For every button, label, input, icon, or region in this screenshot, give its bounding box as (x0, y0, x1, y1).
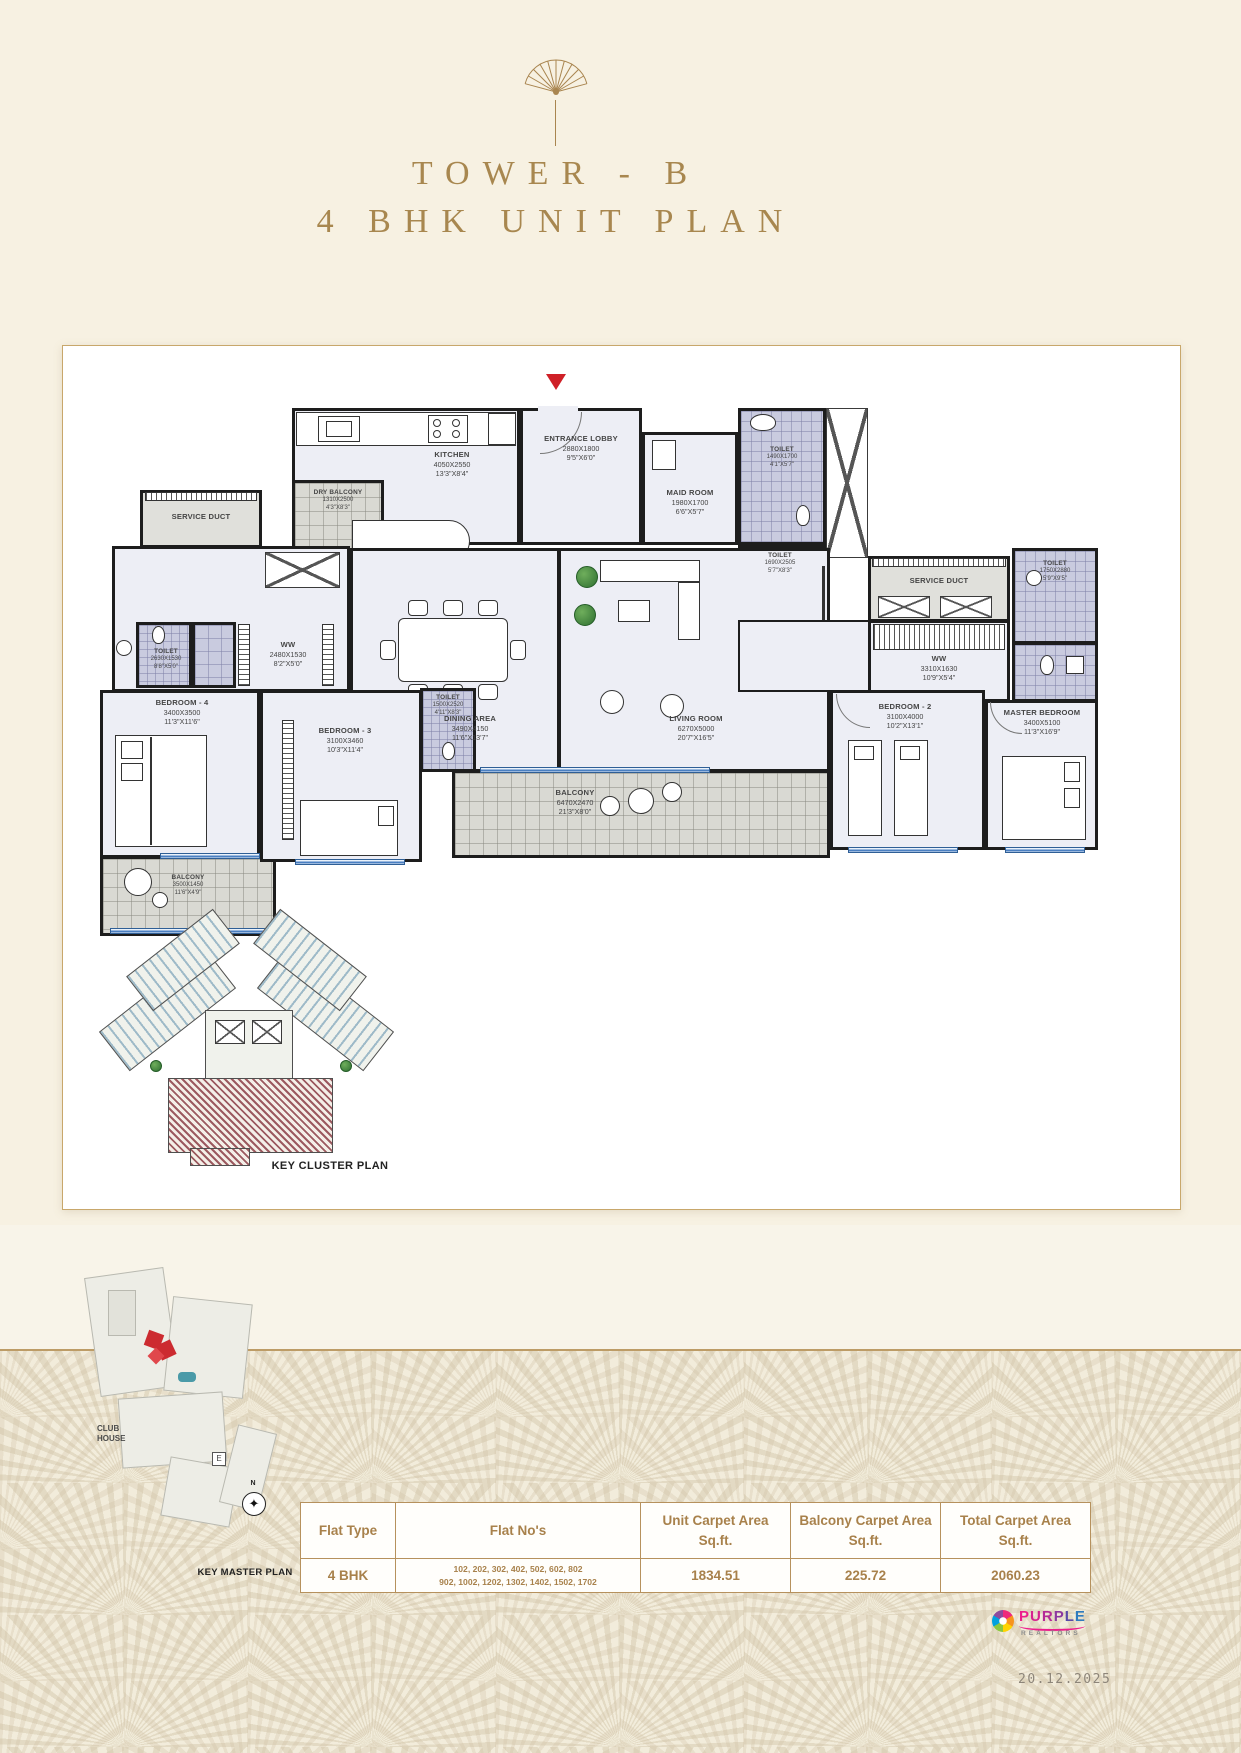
col-flat-nos: Flat No's (396, 1503, 641, 1559)
cluster-core-shaft (252, 1020, 282, 1044)
bedroom-4-label: BEDROOM - 4 3400X3500 11'3"X11'6" (126, 698, 238, 727)
kitchen-sink-bowl (326, 421, 352, 437)
sofa (600, 560, 700, 582)
page-title-line1: TOWER - B (0, 155, 1112, 193)
basin (750, 414, 776, 431)
duct-xbox (940, 596, 992, 618)
pillow (1064, 788, 1080, 808)
toilet-lower-room (1012, 642, 1098, 702)
page: TOWER - B 4 BHK UNIT PLAN (0, 0, 1241, 1753)
duct-xbox (878, 596, 930, 618)
hob-burner (452, 419, 460, 427)
map-block (163, 1296, 252, 1399)
entrance-lobby-room (520, 408, 642, 545)
dining-chair (408, 600, 428, 616)
plant (574, 604, 596, 626)
basin (116, 640, 132, 656)
page-title-line2: 4 BHK UNIT PLAN (0, 203, 1112, 241)
flat-nos-line2: 902, 1002, 1202, 1302, 1402, 1502, 1702 (402, 1576, 634, 1589)
key-cluster-plan-label: KEY CLUSTER PLAN (272, 1160, 389, 1172)
fan-icon (524, 50, 588, 103)
lounge-chair (124, 868, 152, 896)
window (848, 847, 958, 853)
col-unit-area: Unit Carpet Area Sq.ft. (641, 1503, 791, 1559)
map-pool (178, 1372, 196, 1382)
ww-bed4-label: WW 2480X1530 8'2"X5'0" (232, 640, 344, 669)
washing-machine (1066, 656, 1084, 674)
pillow (121, 763, 143, 781)
entrance-arrow-icon (546, 374, 566, 390)
hob-burner (433, 419, 441, 427)
maid-bed (652, 440, 676, 470)
club-house-label: CLUB HOUSE (97, 1424, 143, 1444)
pillow (854, 746, 874, 760)
dining-table (398, 618, 508, 682)
shaft (826, 408, 868, 558)
maid-room-label: MAID ROOM 1980X1700 6'6"X5'7" (634, 488, 746, 517)
entrance-lobby-label: ENTRANCE LOBBY 2880X1800 9'5"X6'0" (525, 434, 637, 463)
toilet-common-label: TOILET 1690X2505 5'7"X8'3" (751, 552, 809, 576)
wc (1040, 655, 1054, 675)
cell-flat-type: 4 BHK (301, 1559, 396, 1593)
cell-flat-nos: 102, 202, 302, 402, 502, 602, 802 902, 1… (396, 1559, 641, 1593)
window (1005, 847, 1085, 853)
bedroom-3-label: BEDROOM - 3 3100X3460 10'3"X11'4" (289, 726, 401, 755)
map-block (108, 1290, 136, 1336)
cluster-green (150, 1060, 162, 1072)
area-table-header-row: Flat Type Flat No's Unit Carpet Area Sq.… (301, 1503, 1091, 1559)
cell-total-area: 2060.23 (941, 1559, 1091, 1593)
hob-burner (433, 430, 441, 438)
kitchen-label: KITCHEN 4050X2550 13'3"X8'4" (396, 450, 508, 479)
closet-xbox (265, 552, 340, 588)
dining-chair (478, 600, 498, 616)
logo-sub: REALTORS (1021, 1630, 1081, 1637)
header-divider-line (555, 100, 556, 146)
toilet-master-label: TOILET 1750X2880 5'9"X9'5" (1026, 560, 1084, 584)
hallway (738, 620, 870, 692)
area-table: Flat Type Flat No's Unit Carpet Area Sq.… (300, 1502, 1091, 1593)
wardrobe-hatch (873, 624, 1005, 650)
flat-nos-line1: 102, 202, 302, 402, 502, 602, 802 (402, 1563, 634, 1576)
wc (152, 626, 165, 644)
coffee-table (618, 600, 650, 622)
balcony-bed4-label: BALCONY 3500X1450 11'6"X4'9" (159, 874, 217, 898)
col-total-area: Total Carpet Area Sq.ft. (941, 1503, 1091, 1559)
pillow (378, 806, 394, 826)
service-duct-right-label: SERVICE DUCT (883, 576, 995, 586)
shower-bed4 (192, 622, 236, 688)
toilet-maid-label: TOILET 1490X1700 4'1"X5'7" (753, 446, 811, 470)
cell-unit-area: 1834.51 (641, 1559, 791, 1593)
armchair (600, 690, 624, 714)
dry-balcony-label: DRY BALCONY 1310X2500 4'3"X8'3" (309, 489, 367, 513)
duct-hatch (145, 492, 257, 501)
bedroom-2-label: BEDROOM - 2 3100X4000 10'2"X13'1" (849, 702, 961, 731)
toilet-maid-room (738, 408, 826, 545)
window (480, 767, 710, 773)
sofa (678, 582, 700, 640)
compass-icon: ✦ (242, 1492, 266, 1516)
window (160, 853, 260, 859)
kitchen-fridge (488, 413, 516, 445)
ww-master-label: WW 3310X1630 10'9"X5'4" (883, 654, 995, 683)
pillow (900, 746, 920, 760)
wc (796, 505, 810, 526)
compass-north-label: N (250, 1480, 255, 1487)
duct-hatch (872, 558, 1006, 567)
compass-star: ✦ (249, 1496, 260, 1511)
area-table-data-row: 4 BHK 102, 202, 302, 402, 502, 602, 802 … (301, 1559, 1091, 1593)
wc (442, 742, 455, 760)
living-room-label: LIVING ROOM 6270X5000 20'7"X16'5" (640, 714, 752, 743)
cluster-green (340, 1060, 352, 1072)
balcony-table (628, 788, 654, 814)
date-stamp: 20.12.2025 (1018, 1672, 1111, 1687)
hob-burner (452, 430, 460, 438)
balcony-chair (662, 782, 682, 802)
cell-balcony-area: 225.72 (791, 1559, 941, 1593)
balcony-main-label: BALCONY 6470X2470 21'3"X8'0" (519, 788, 631, 817)
east-marker: E (212, 1452, 226, 1466)
toilet-bed3-label: TOILET 1500X2520 4'11"X8'3" (419, 694, 477, 718)
service-duct-left-label: SERVICE DUCT (145, 512, 257, 522)
cluster-podium (168, 1078, 333, 1153)
key-master-plan-label: KEY MASTER PLAN (197, 1567, 292, 1578)
col-flat-type: Flat Type (301, 1503, 396, 1559)
pillow (121, 741, 143, 759)
master-bedroom-label: MASTER BEDROOM 3400X5100 11'3"X16'9" (986, 708, 1098, 737)
bed-line (150, 737, 152, 845)
dining-chair (478, 684, 498, 700)
logo-pinwheel-icon (992, 1610, 1014, 1632)
cluster-core-shaft (215, 1020, 245, 1044)
dining-chair (443, 600, 463, 616)
dining-chair (380, 640, 396, 660)
col-balcony-area: Balcony Carpet Area Sq.ft. (791, 1503, 941, 1559)
dining-chair (510, 640, 526, 660)
pillow (1064, 762, 1080, 782)
cluster-podium (190, 1148, 250, 1166)
window (295, 859, 405, 865)
plant (576, 566, 598, 588)
balcony-main-room (452, 770, 830, 858)
dining-area-label: DINING AREA 3490X4150 11'6"X13'7" (414, 714, 526, 743)
toilet-bed4-label: TOILET 2630X1530 8'8"X5'0" (137, 648, 195, 672)
